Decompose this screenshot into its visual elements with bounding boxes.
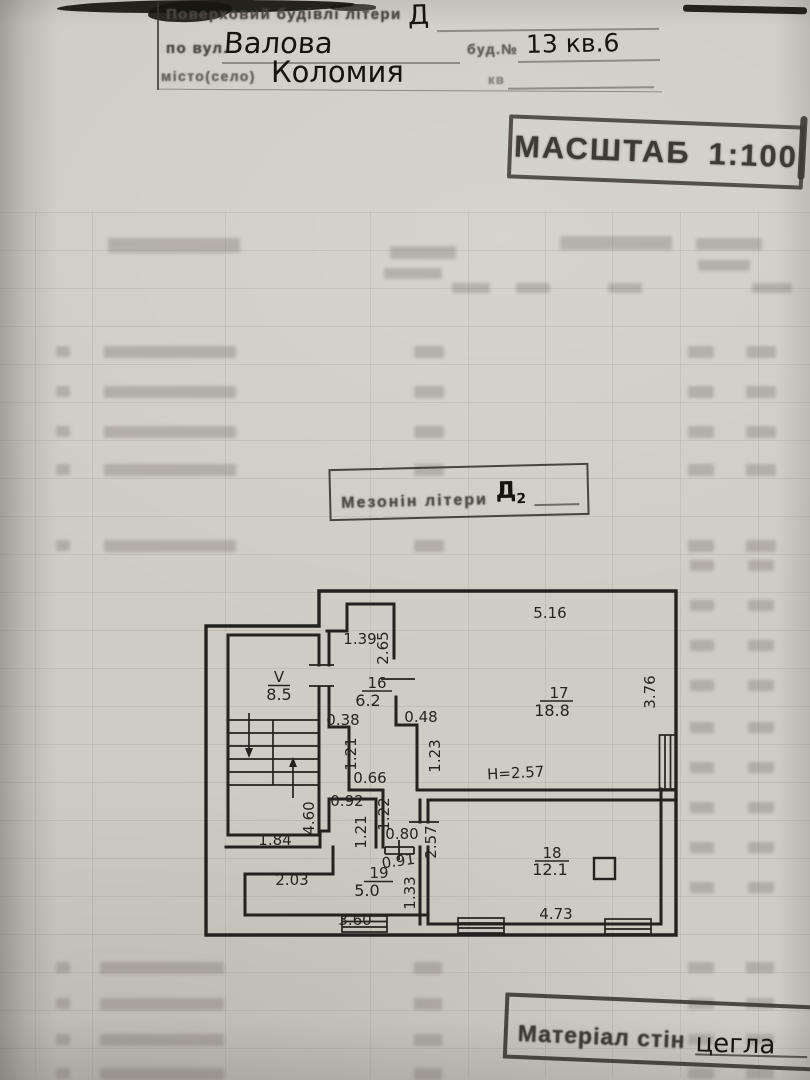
scale-stamp-word: МАСШТАБ xyxy=(513,129,691,172)
scanned-page: Поверховий будівлі літери Д по вул. Вало… xyxy=(0,0,810,1080)
scale-stamp-ratio: 1:100 xyxy=(708,136,799,175)
stair-down-arrowhead xyxy=(245,748,253,758)
room-area-label: 12.1 xyxy=(532,860,568,879)
window-symbol xyxy=(605,919,651,934)
scale-stamp: МАСШТАБ 1:100 xyxy=(507,114,805,189)
dimension-label: 0.66 xyxy=(353,769,386,787)
fill-in-line xyxy=(534,503,579,506)
dimension-label: 4.60 xyxy=(300,801,318,834)
material-stamp-value: цегла xyxy=(695,1033,808,1058)
dimension-label: 1.33 xyxy=(401,876,419,909)
plan-title-label: Мезонін літери xyxy=(341,491,488,513)
material-stamp: Матеріал стін цегла xyxy=(503,992,810,1071)
dimension-label: 3.60 xyxy=(338,911,371,929)
material-stamp-label: Матеріал стін xyxy=(517,1020,686,1054)
dimension-label: 1.21 xyxy=(352,815,370,848)
dimension-label: 2.03 xyxy=(275,871,308,889)
dimension-label: 1.39 xyxy=(343,630,376,648)
form-border xyxy=(157,2,159,90)
form-label-street: по вул. xyxy=(166,40,229,57)
room-number-label: V xyxy=(274,668,285,686)
window-symbol xyxy=(660,735,677,789)
room-area-label: 6.2 xyxy=(355,691,380,710)
dimension-label: 0.92 xyxy=(330,792,363,810)
staircase xyxy=(228,713,319,798)
dimension-label: 0.48 xyxy=(404,708,437,726)
room-area-label: 18.8 xyxy=(534,701,570,720)
room-number-label: 17 xyxy=(549,684,568,702)
room-number-label: 19 xyxy=(369,864,388,882)
form-label-building: Поверховий будівлі літери xyxy=(166,6,402,23)
dimension-label: 0.38 xyxy=(326,711,359,729)
dimension-label: 2.57 xyxy=(422,825,440,858)
room-number-label: 16 xyxy=(367,674,386,692)
form-value-city: Коломия xyxy=(271,55,404,89)
form-label-city: місто(село) xyxy=(161,68,256,84)
form-value-house: 13 кв.6 xyxy=(526,28,620,59)
plan-title-letter: Д2 xyxy=(496,482,527,509)
form-label-apartment: кв xyxy=(488,72,505,87)
form-label-house: буд.№ xyxy=(467,41,518,57)
dimension-label: 1.23 xyxy=(426,739,444,772)
dimension-label: 3.76 xyxy=(641,675,659,708)
dimension-label: 0.80 xyxy=(385,825,418,843)
floor-plan: 5.163.761.392.650.380.481.211.230.66H=2.… xyxy=(183,568,699,962)
dimension-label: 1.21 xyxy=(342,737,360,770)
dimension-label: 1.84 xyxy=(258,831,291,849)
room-area-label: 8.5 xyxy=(266,685,291,704)
room-area-label: 5.0 xyxy=(354,881,379,900)
dimension-label: 5.16 xyxy=(533,604,566,622)
form-value-letter: Д xyxy=(407,0,429,31)
dimension-label: H=2.57 xyxy=(487,763,545,784)
plan-title-box: Мезонін літери Д2 xyxy=(328,463,589,521)
dimension-label: 4.73 xyxy=(539,905,572,923)
flue-symbol xyxy=(594,858,615,879)
dimension-label: 2.65 xyxy=(374,631,392,664)
